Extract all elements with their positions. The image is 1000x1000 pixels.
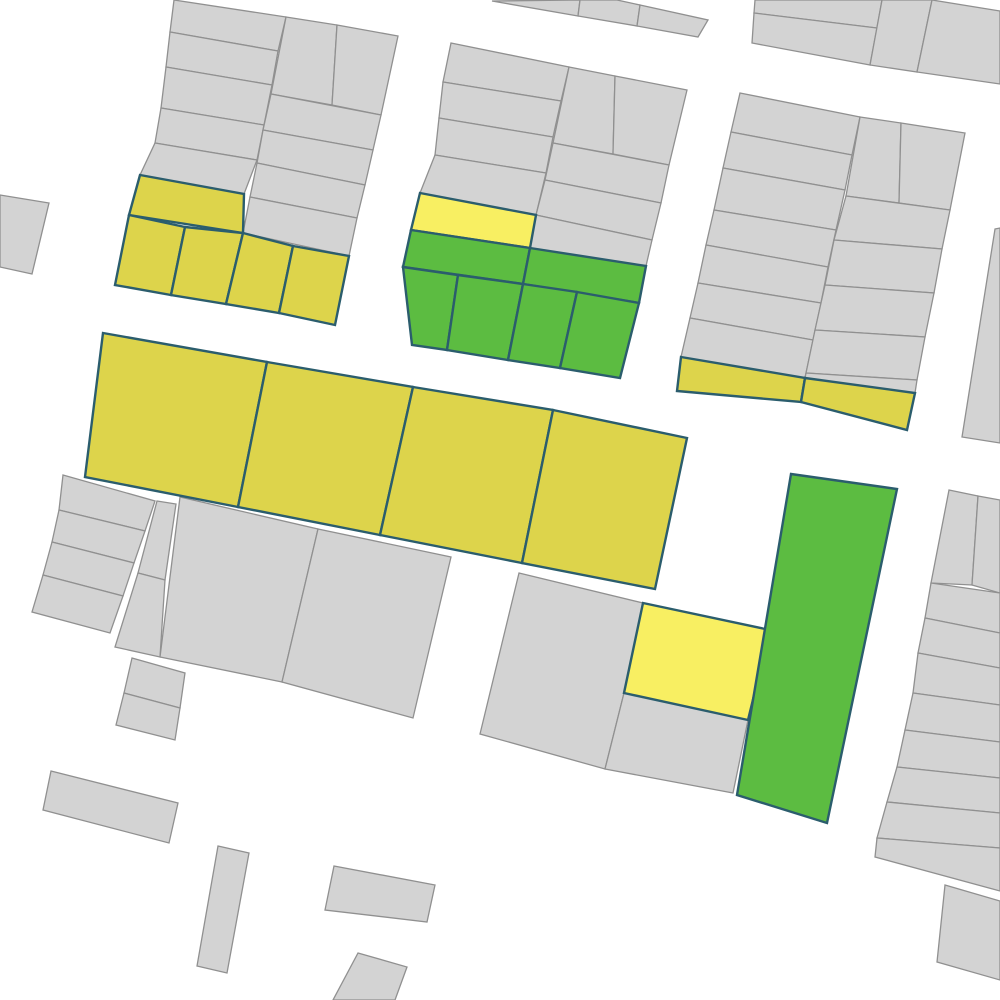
block-f-center-right-green-layer [737,474,897,823]
map-canvas[interactable] [0,0,1000,1000]
parcel-t2-gray-1[interactable] [492,0,580,16]
parcel-r-gray-4[interactable] [333,953,407,1000]
parcel-r-gray-1[interactable] [43,771,178,843]
parcel-c-gray-13[interactable] [806,330,925,380]
parcel-g-gray-1[interactable] [931,490,978,585]
parcel-c-gray-12[interactable] [815,285,934,337]
parcel-t3-gray-4[interactable] [917,0,1000,84]
parcel-r-gray-2[interactable] [197,846,249,973]
parcel-t2-gray-3[interactable] [637,5,708,37]
parcel-g-gray-0[interactable] [962,228,1000,443]
parcel-c-gray-9[interactable] [899,123,965,210]
parcel-b-gray-6[interactable] [613,76,687,165]
bottom-structures-gray-layer [43,771,435,1000]
parcel-c-gray-11[interactable] [825,240,942,293]
block-top-middle-strip-gray-layer [492,0,708,37]
left-edge-parcel-gray-layer [0,195,49,274]
parcel-a-gray-7[interactable] [332,25,398,115]
parcel-f-green-tall[interactable] [737,474,897,823]
parcel-l-gray-1[interactable] [0,195,49,274]
parcel-t2-gray-2[interactable] [578,0,640,26]
parcel-d-yellow-1[interactable] [85,333,267,507]
block-h-bottom-right-gray-layer [937,885,1000,980]
parcel-d-yellow-4[interactable] [522,410,687,589]
parcel-a-yellow-5[interactable] [279,246,349,325]
block-top-right-strip-gray-layer [752,0,1000,84]
map-viewport [0,0,1000,1000]
parcel-g-gray-10[interactable] [875,838,1000,891]
parcel-h-gray-1[interactable] [937,885,1000,980]
parcel-r-gray-3[interactable] [325,866,435,922]
block-c-top-right-gray-layer [681,93,965,393]
